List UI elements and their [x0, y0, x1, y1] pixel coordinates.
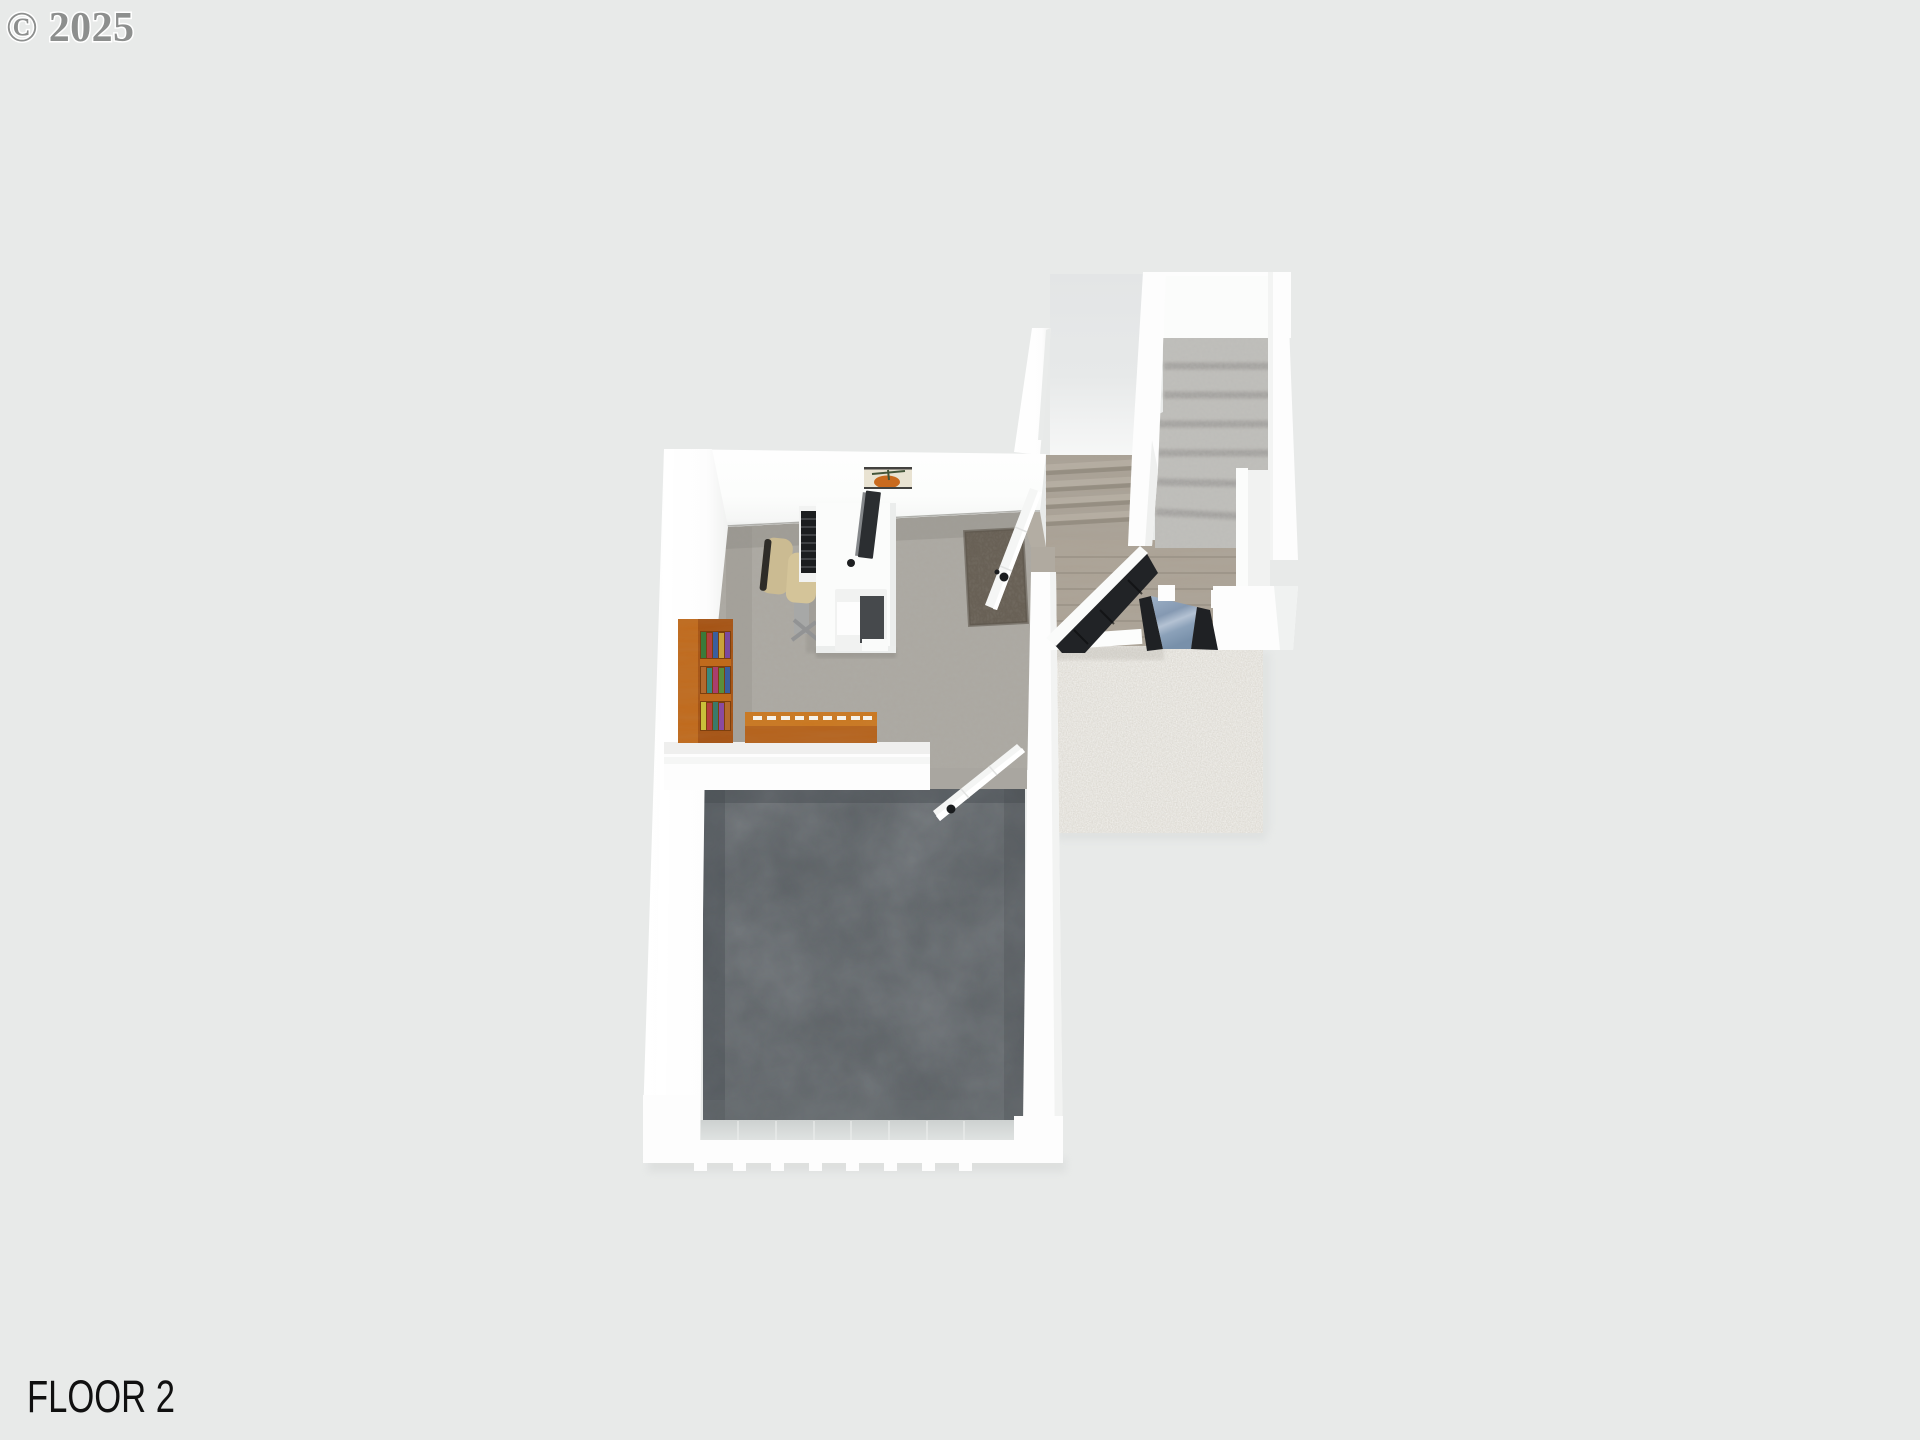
svg-text:© 2025: © 2025	[6, 5, 134, 51]
svg-text:FLOOR 2: FLOOR 2	[27, 1371, 175, 1422]
